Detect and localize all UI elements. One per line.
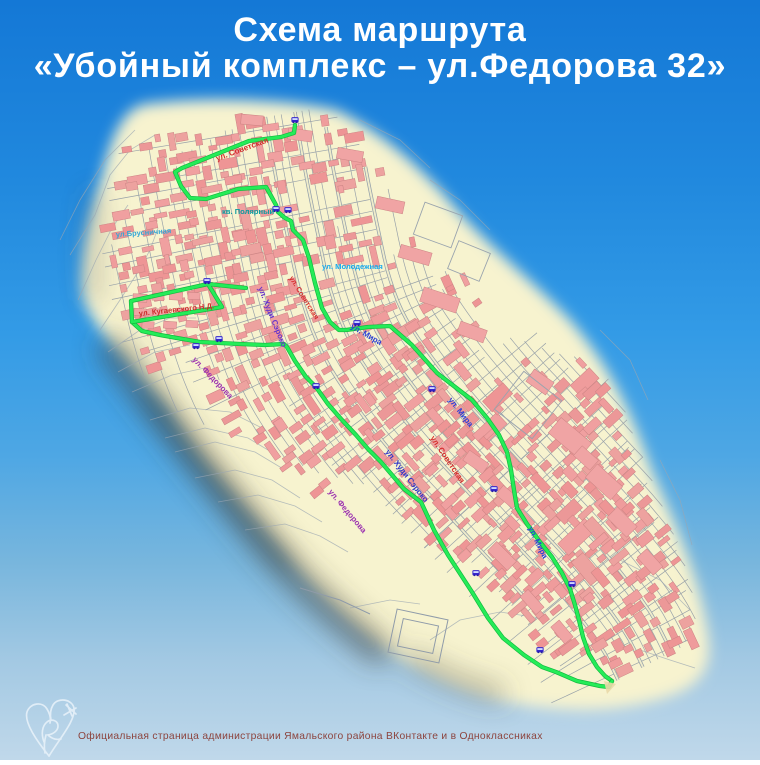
svg-text:«Убойный комплекс – ул.Федоров: «Убойный комплекс – ул.Федорова 32»: [34, 47, 727, 85]
svg-text:Схема маршрута: Схема маршрута: [233, 11, 527, 49]
svg-text:Официальная страница администр: Официальная страница администрации Ямаль…: [78, 730, 543, 742]
svg-text:кв. Полярный: кв. Полярный: [222, 207, 275, 216]
svg-text:ул. Молодежная: ул. Молодежная: [322, 262, 383, 271]
